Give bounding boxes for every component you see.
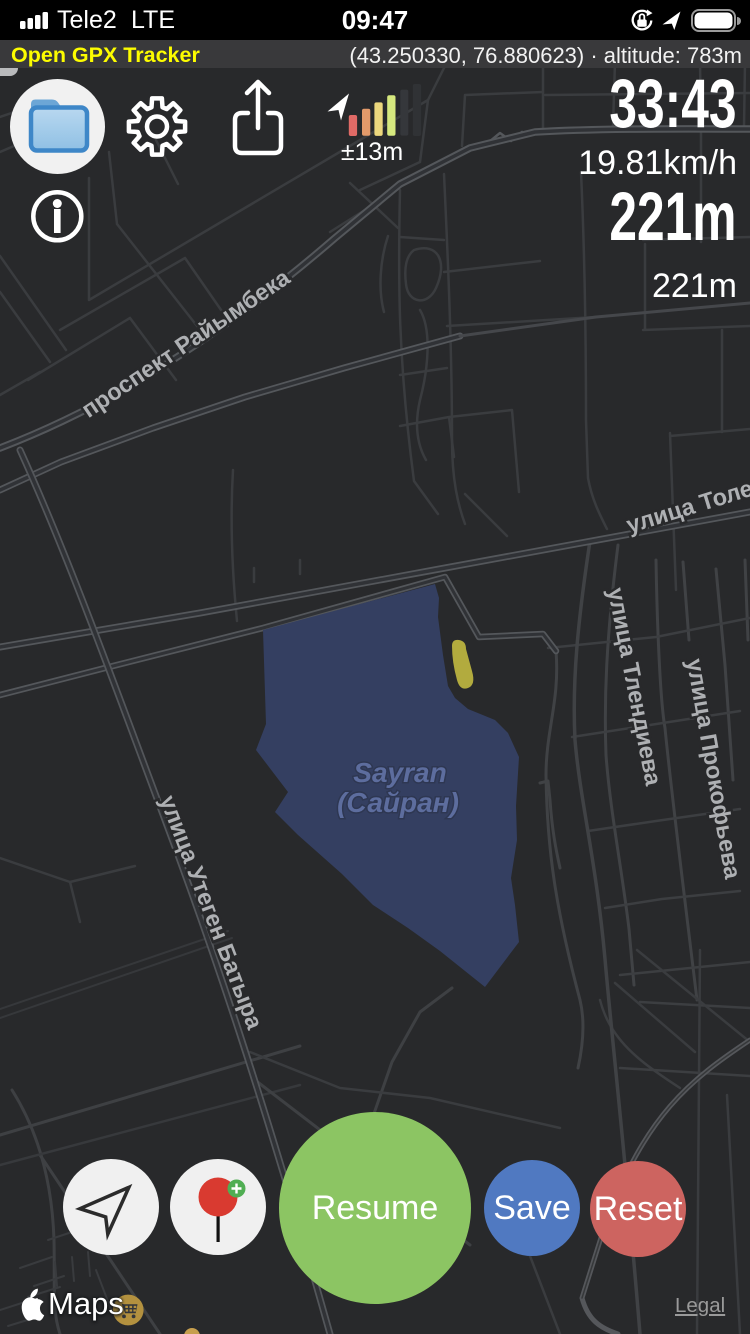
svg-text:LTE: LTE — [131, 6, 175, 34]
svg-text:Sayran: Sayran — [353, 757, 446, 788]
svg-text:09:47: 09:47 — [342, 5, 409, 35]
svg-text:±13m: ±13m — [341, 138, 403, 166]
svg-text:(Сайран): (Сайран) — [337, 787, 459, 818]
svg-text:Tele2: Tele2 — [57, 6, 117, 34]
